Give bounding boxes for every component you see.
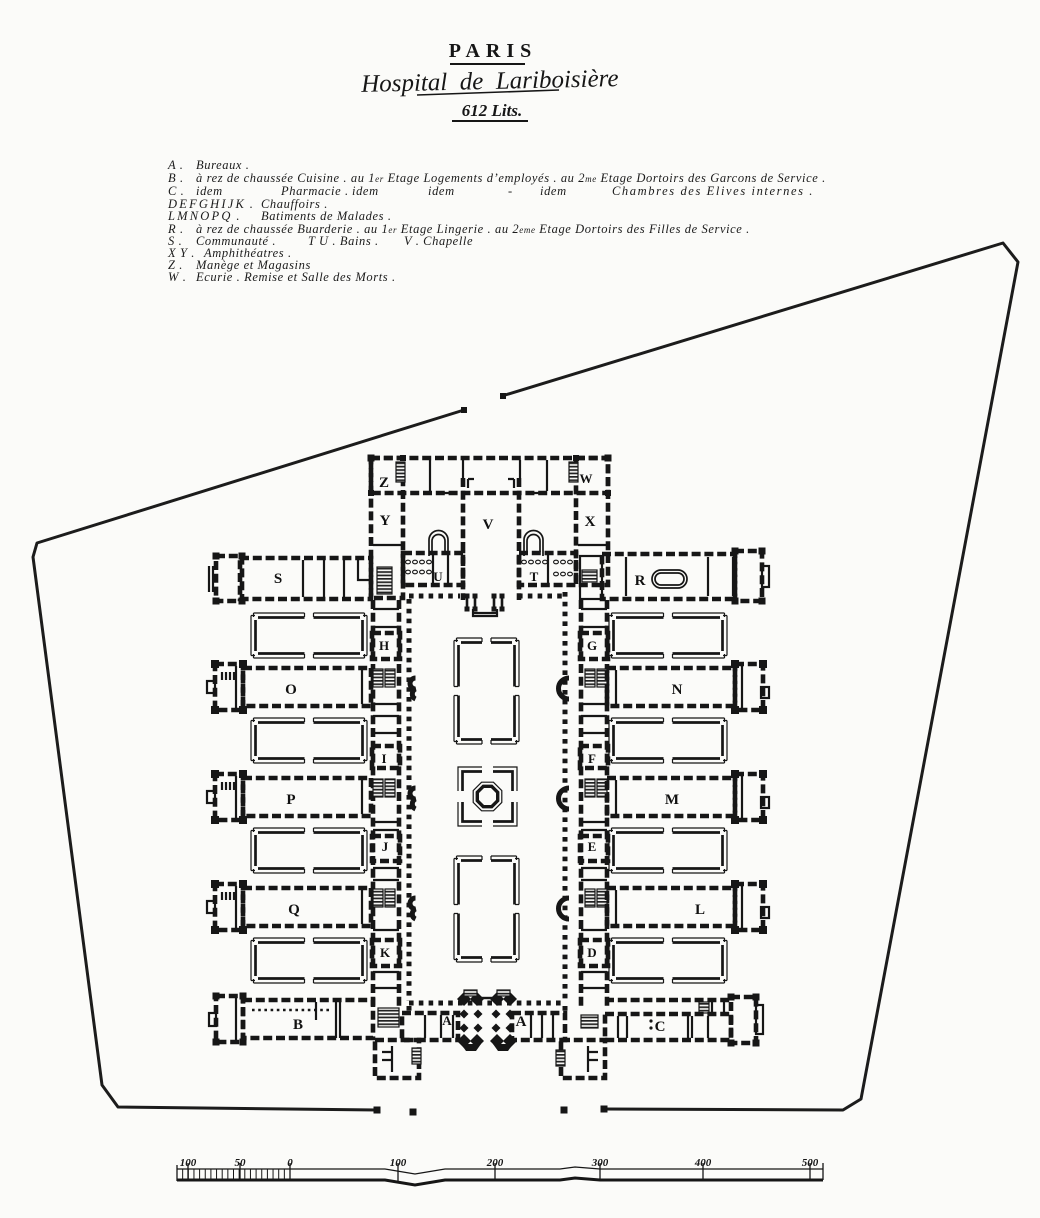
svg-text:H: H (379, 638, 389, 653)
svg-text:M: M (665, 792, 679, 808)
svg-text:Chambres des Elives internes .: Chambres des Elives internes . (612, 184, 814, 198)
svg-text:200: 200 (486, 1157, 504, 1169)
svg-text:Y: Y (380, 513, 391, 529)
svg-text:Q: Q (288, 902, 300, 918)
svg-text:Bureaux .: Bureaux . (196, 158, 250, 172)
svg-text:50: 50 (235, 1157, 247, 1169)
svg-text:0: 0 (287, 1157, 293, 1169)
svg-text:PARIS: PARIS (449, 40, 538, 62)
svg-text:J: J (382, 839, 389, 854)
svg-text:A .: A . (167, 158, 183, 172)
svg-text:W: W (580, 471, 593, 486)
svg-text:D: D (587, 945, 596, 960)
svg-text:Batiments de Malades .: Batiments de Malades . (261, 209, 392, 223)
svg-text:Pharmacie .: Pharmacie . (280, 184, 349, 198)
svg-text:C .: C . (168, 184, 184, 198)
svg-text:300: 300 (591, 1157, 609, 1169)
svg-text:-: - (508, 184, 513, 198)
svg-text:C: C (655, 1019, 666, 1035)
svg-text:500: 500 (802, 1157, 819, 1169)
svg-text:X: X (585, 514, 596, 530)
svg-text:T U . Bains .: T U . Bains . (308, 234, 379, 248)
svg-text:P: P (286, 792, 295, 808)
svg-text:à rez de chaussée Cuisine . au: à rez de chaussée Cuisine . au 1er Etage… (196, 171, 826, 185)
svg-text:T: T (530, 569, 539, 584)
svg-text:V: V (483, 517, 494, 533)
svg-text:L: L (695, 902, 705, 918)
svg-text:idem: idem (196, 184, 223, 198)
svg-text:U: U (433, 569, 443, 584)
svg-text:612 Lits.: 612 Lits. (462, 101, 522, 120)
svg-text:Ecurie . Remise et Salle des: Ecurie . Remise et Salle des Morts . (195, 270, 396, 284)
svg-text:100: 100 (180, 1157, 197, 1169)
svg-text:400: 400 (694, 1157, 712, 1169)
svg-text:W .: W . (168, 270, 186, 284)
svg-text:F: F (588, 751, 596, 766)
svg-text:S: S (274, 571, 282, 587)
svg-text:B .: B . (168, 171, 184, 185)
svg-text:K: K (380, 945, 391, 960)
svg-text:V . Chapelle: V . Chapelle (404, 234, 473, 248)
svg-text:100: 100 (390, 1157, 407, 1169)
svg-text:E: E (588, 839, 597, 854)
svg-text:A: A (516, 1014, 527, 1030)
svg-text:I: I (381, 751, 386, 766)
svg-text:LMNOPQ .: LMNOPQ . (167, 209, 240, 223)
svg-text:B: B (293, 1017, 303, 1033)
svg-text:idem: idem (540, 184, 567, 198)
svg-text:N: N (672, 682, 683, 698)
svg-text:A: A (442, 1013, 452, 1028)
svg-text:Z: Z (379, 475, 389, 491)
svg-text:O: O (285, 682, 297, 698)
svg-text:idem: idem (428, 184, 455, 198)
svg-text:G: G (587, 638, 597, 653)
svg-text:idem: idem (352, 184, 379, 198)
svg-text:R: R (635, 573, 646, 589)
